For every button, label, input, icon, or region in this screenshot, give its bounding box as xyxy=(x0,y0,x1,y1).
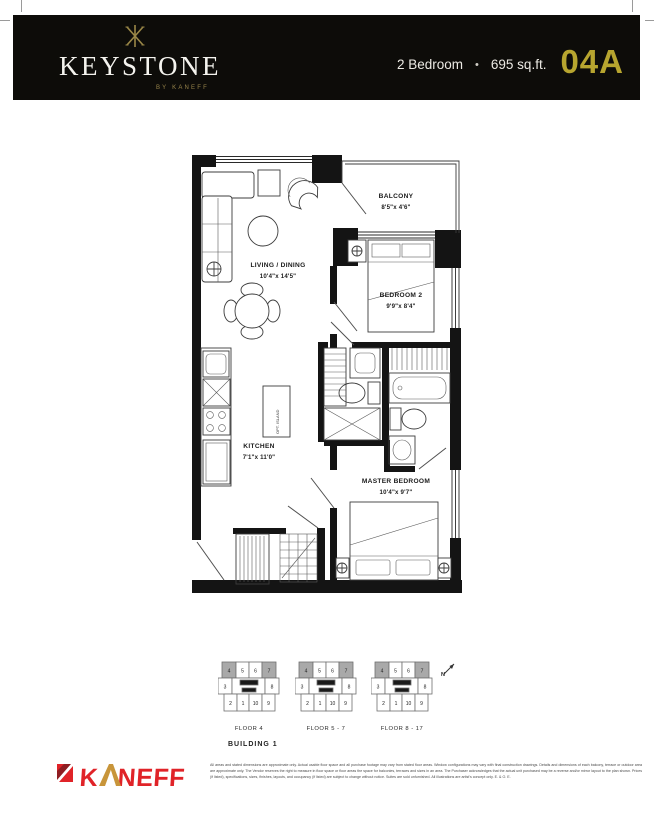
kitchen-counter xyxy=(201,348,231,486)
brand-block: KEYSTONE BY KANEFF xyxy=(59,23,211,91)
main-bathroom xyxy=(324,348,380,440)
kaneff-logo: K NEFF xyxy=(55,760,203,794)
fridge xyxy=(203,440,230,484)
keystone-mark-icon xyxy=(122,23,148,49)
cropmark-top-left-h xyxy=(0,20,10,21)
vanity-sink xyxy=(350,348,380,378)
cropmark-top-left-v xyxy=(21,0,22,12)
north-label: N xyxy=(441,672,445,678)
unit-type-label: 2 Bedroom xyxy=(397,57,463,72)
foyer-tile xyxy=(280,534,317,582)
keyplan-floor-5-7 xyxy=(295,662,356,711)
building-label: BUILDING 1 xyxy=(228,741,278,748)
stove xyxy=(203,408,230,435)
room-balcony: BALCONY 8'5"x 4'6" xyxy=(342,161,459,233)
header-bar: KEYSTONE BY KANEFF 2 Bedroom • 695 sq.ft… xyxy=(13,15,640,100)
bedroom2-label: BEDROOM 2 xyxy=(380,292,423,299)
linen-shelves xyxy=(324,348,346,406)
master-dims: 10'4"x 9'7" xyxy=(380,489,413,496)
balcony-dims: 8'5"x 4'6" xyxy=(381,204,410,211)
dining-set xyxy=(224,283,280,339)
floorplan-drawing: BALCONY 8'5"x 4'6" xyxy=(185,140,477,608)
master-label: MASTER BEDROOM xyxy=(362,478,431,485)
room-kitchen: OPT. ISLAND KITCHEN 7'1"x 11'0" xyxy=(201,348,290,486)
kaneff-logo-neff: NEFF xyxy=(117,764,186,792)
island-label: OPT. ISLAND xyxy=(275,409,280,434)
bed-bedroom2 xyxy=(368,240,434,332)
kaneff-logo-icon xyxy=(57,764,73,782)
toilet-ensuite xyxy=(390,408,426,430)
balcony-label: BALCONY xyxy=(379,193,414,200)
kitchen-island: OPT. ISLAND xyxy=(263,386,290,437)
kitchen-sink xyxy=(203,351,229,377)
bedroom2-dims: 9'9"x 8'4" xyxy=(386,303,415,310)
room-master-bedroom: MASTER BEDROOM 10'4"x 9'7" xyxy=(336,478,451,580)
unit-code: 04A xyxy=(560,35,624,81)
room-bedroom2: BEDROOM 2 9'9"x 8'4" xyxy=(348,240,434,332)
ensuite-bathroom xyxy=(389,348,450,464)
floorplan-page: { "header": { "brand_name": "KEYSTONE", … xyxy=(0,0,654,834)
sofa-chaise xyxy=(202,172,254,198)
kitchen-dims: 7'1"x 11'0" xyxy=(243,454,276,461)
keyplans: 4 5 6 7 3 8 2 1 10 9 FLOOR 4 FLOOR 5 - 7… xyxy=(210,652,470,762)
ceiling-light-living xyxy=(207,262,221,276)
keyplan-label-floor57: FLOOR 5 - 7 xyxy=(307,726,346,732)
keyplan-floor-4 xyxy=(218,662,279,711)
keyplan-floor-8-17 xyxy=(371,662,432,711)
legal-disclaimer: All areas and stated dimensions are appr… xyxy=(210,763,642,780)
bathtub xyxy=(389,373,450,403)
living-label: LIVING / DINING xyxy=(250,262,305,269)
washer-dryer xyxy=(324,408,380,440)
unit-meta: 2 Bedroom • 695 sq.ft. xyxy=(397,43,546,72)
coffee-table xyxy=(248,216,278,246)
kaneff-logo-k: K xyxy=(79,764,99,792)
brand-byline: BY KANEFF xyxy=(59,85,211,91)
keyplan-label-floor817: FLOOR 8 - 17 xyxy=(381,726,423,732)
cropmark-top-right-h xyxy=(645,20,654,21)
vanity-ensuite xyxy=(389,436,415,464)
header-unit-info: 2 Bedroom • 695 sq.ft. 04A xyxy=(397,15,624,100)
console-table xyxy=(258,170,280,196)
entry-foyer xyxy=(236,534,317,584)
kitchen-label: KITCHEN xyxy=(243,443,274,450)
bullet-separator: • xyxy=(475,59,479,71)
brand-name: KEYSTONE xyxy=(59,51,221,81)
unit-area-label: 695 sq.ft. xyxy=(491,57,547,72)
north-arrow-icon: N xyxy=(441,664,454,678)
room-living-dining: LIVING / DINING 10'4"x 14'5" xyxy=(202,170,322,339)
cabinet xyxy=(203,379,230,406)
toilet xyxy=(339,382,380,404)
living-dims: 10'4"x 14'5" xyxy=(260,273,297,280)
keyplan-label-floor4: FLOOR 4 xyxy=(235,726,264,732)
cropmark-top-right-v xyxy=(632,0,633,12)
